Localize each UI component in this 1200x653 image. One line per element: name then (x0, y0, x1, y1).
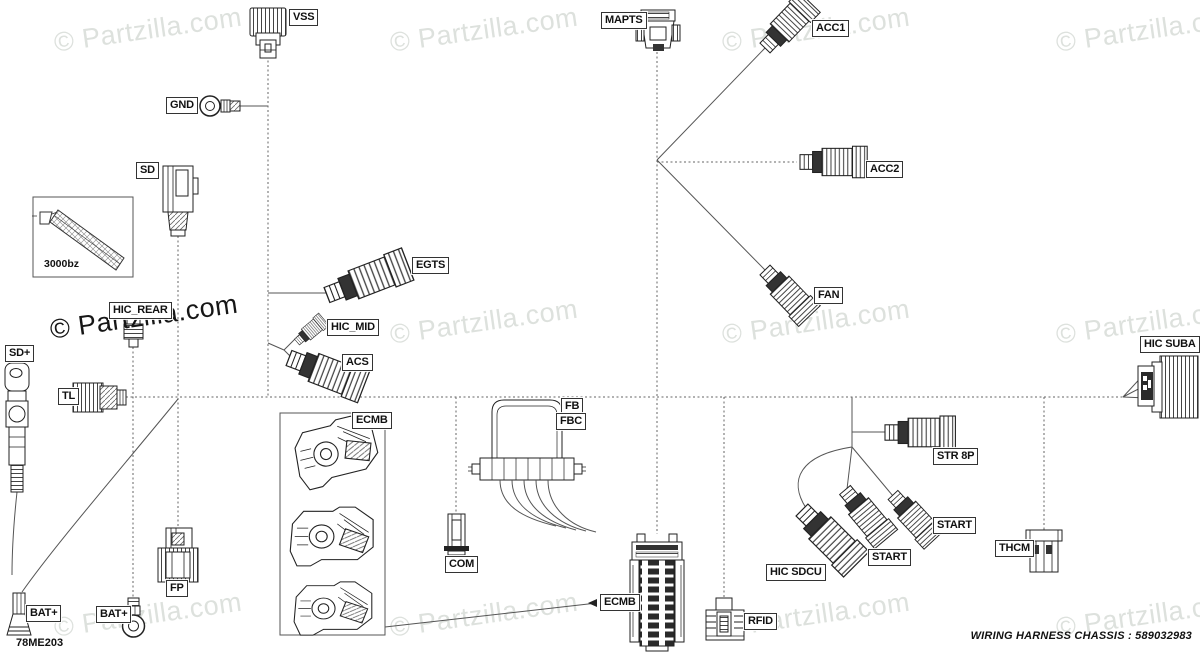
label-hic-sdcu: HIC SDCU (766, 564, 826, 581)
label-vss: VSS (289, 9, 318, 26)
harness-branch-lines (12, 48, 1146, 592)
label-bat-plus-1: BAT+ (26, 605, 61, 622)
label-sd-plus: SD+ (5, 345, 34, 362)
label-rfid: RFID (744, 613, 777, 630)
diagram-title: WIRING HARNESS CHASSIS : 589032983 (971, 630, 1192, 642)
label-acc1: ACC1 (812, 20, 849, 37)
inset-caption: 3000bz (44, 258, 79, 270)
label-start-2: START (868, 549, 911, 566)
label-fan: FAN (814, 287, 843, 304)
connector-sd (163, 166, 198, 236)
label-acc2: ACC2 (866, 161, 903, 178)
label-fp: FP (166, 580, 188, 597)
connector-hic-suba (1138, 356, 1198, 418)
diagram-part-number: 589032983 (1135, 630, 1192, 642)
label-sd: SD (136, 162, 159, 179)
label-com: COM (445, 556, 478, 573)
fuse-box-wires (500, 480, 596, 532)
connector-hic-mid (292, 313, 330, 348)
connector-rfid (706, 598, 744, 640)
label-acs: ACS (342, 354, 373, 371)
start-right-line (852, 447, 893, 496)
connector-com (444, 514, 469, 555)
connector-gnd (200, 96, 240, 116)
ecmb-view-3 (294, 582, 372, 635)
label-ecmb-box: ECMB (352, 412, 392, 429)
label-mapts: MAPTS (601, 12, 647, 29)
label-gnd: GND (166, 97, 198, 114)
sd-plus-wire (12, 492, 17, 575)
ecmb-leader-arrow (588, 599, 597, 607)
connector-tl (73, 383, 126, 412)
connector-sd-plus (5, 363, 29, 492)
label-hic-rear: HIC_REAR (109, 302, 172, 319)
label-fbc: FBC (556, 413, 586, 430)
fan-line (657, 160, 765, 270)
ecmb-leader-line (385, 603, 597, 627)
label-tl: TL (58, 388, 79, 405)
bat-boot-wire (22, 399, 178, 592)
str8p-lines (852, 397, 885, 447)
diagram-code: 78ME203 (16, 637, 63, 649)
connector-acs (283, 342, 370, 403)
diagram-title-label: WIRING HARNESS CHASSIS (971, 630, 1125, 642)
connector-acc1 (754, 0, 820, 58)
connector-ecmb-main (630, 534, 684, 651)
label-egts: EGTS (412, 257, 449, 274)
ecmb-view-2 (290, 507, 373, 566)
connector-fp (158, 528, 198, 582)
label-hic-suba: HIC SUBA (1140, 336, 1200, 353)
label-str-8p: STR 8P (933, 448, 978, 465)
label-ecmb: ECMB (600, 594, 640, 611)
connector-acc2 (800, 146, 867, 178)
wiring-harness-diagram: © Partzilla.com © Partzilla.com © Partzi… (0, 0, 1200, 653)
label-start-1: START (933, 517, 976, 534)
connector-vss (250, 8, 286, 58)
diagram-title-colon: : (1128, 630, 1132, 642)
acc1-line (657, 48, 765, 160)
connector-str-8p (885, 416, 955, 449)
connector-egts (321, 248, 414, 311)
label-thcm: THCM (995, 540, 1034, 557)
label-bat-plus-2: BAT+ (96, 606, 131, 623)
label-hic-mid: HIC_MID (327, 319, 379, 336)
start-mid-line (847, 447, 852, 489)
